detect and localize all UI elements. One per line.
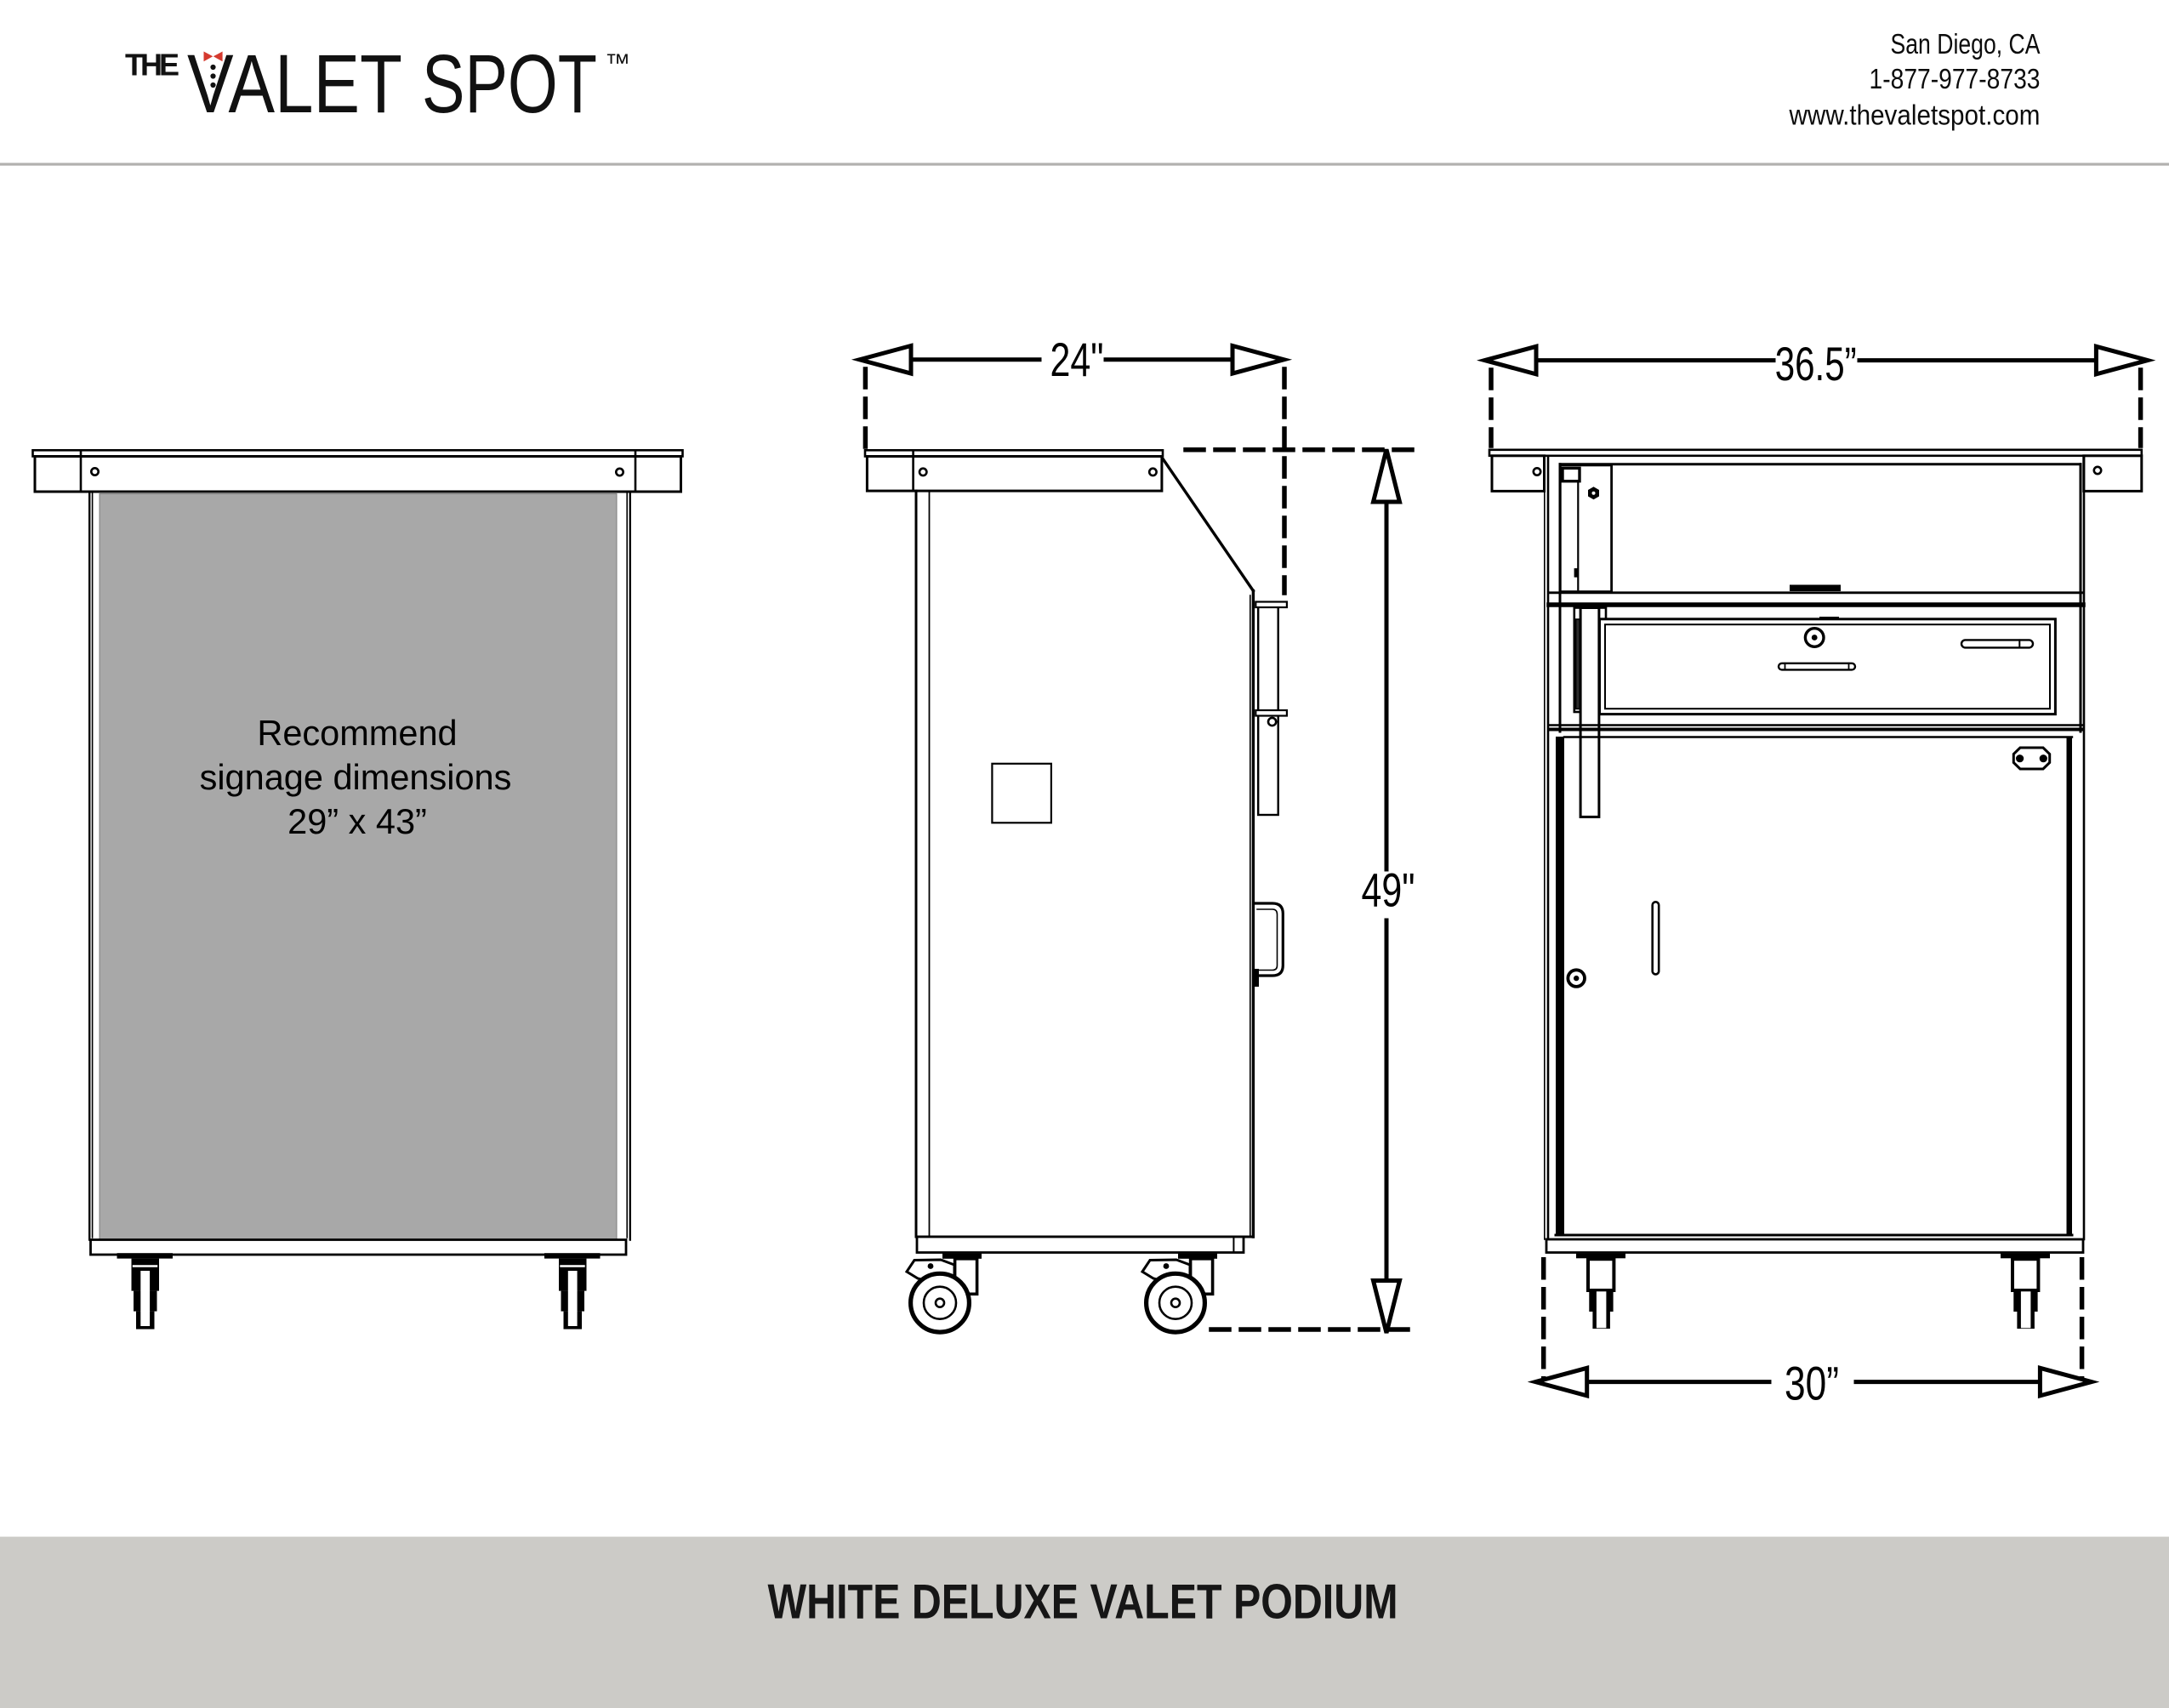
svg-text:1-877-977-8733: 1-877-977-8733 [1870, 63, 2041, 94]
svg-text:VALET: VALET [187, 37, 402, 130]
svg-text:WHITE DELUXE VALET PODIUM: WHITE DELUXE VALET PODIUM [768, 1574, 1398, 1629]
svg-text:signage dimensions: signage dimensions [200, 757, 512, 797]
svg-text:www.thevaletspot.com: www.thevaletspot.com [1789, 100, 2041, 131]
svg-text:Recommend: Recommend [257, 713, 457, 753]
svg-text:™: ™ [605, 49, 630, 77]
svg-text:36.5”: 36.5” [1775, 337, 1857, 390]
svg-text:THE: THE [125, 48, 179, 83]
svg-text:30”: 30” [1785, 1357, 1839, 1410]
svg-text:SPOT: SPOT [422, 37, 597, 130]
svg-text:49": 49" [1362, 863, 1415, 917]
svg-text:29” x 43”: 29” x 43” [287, 801, 427, 841]
svg-text:San Diego, CA: San Diego, CA [1891, 28, 2041, 60]
svg-text:24": 24" [1050, 333, 1104, 386]
